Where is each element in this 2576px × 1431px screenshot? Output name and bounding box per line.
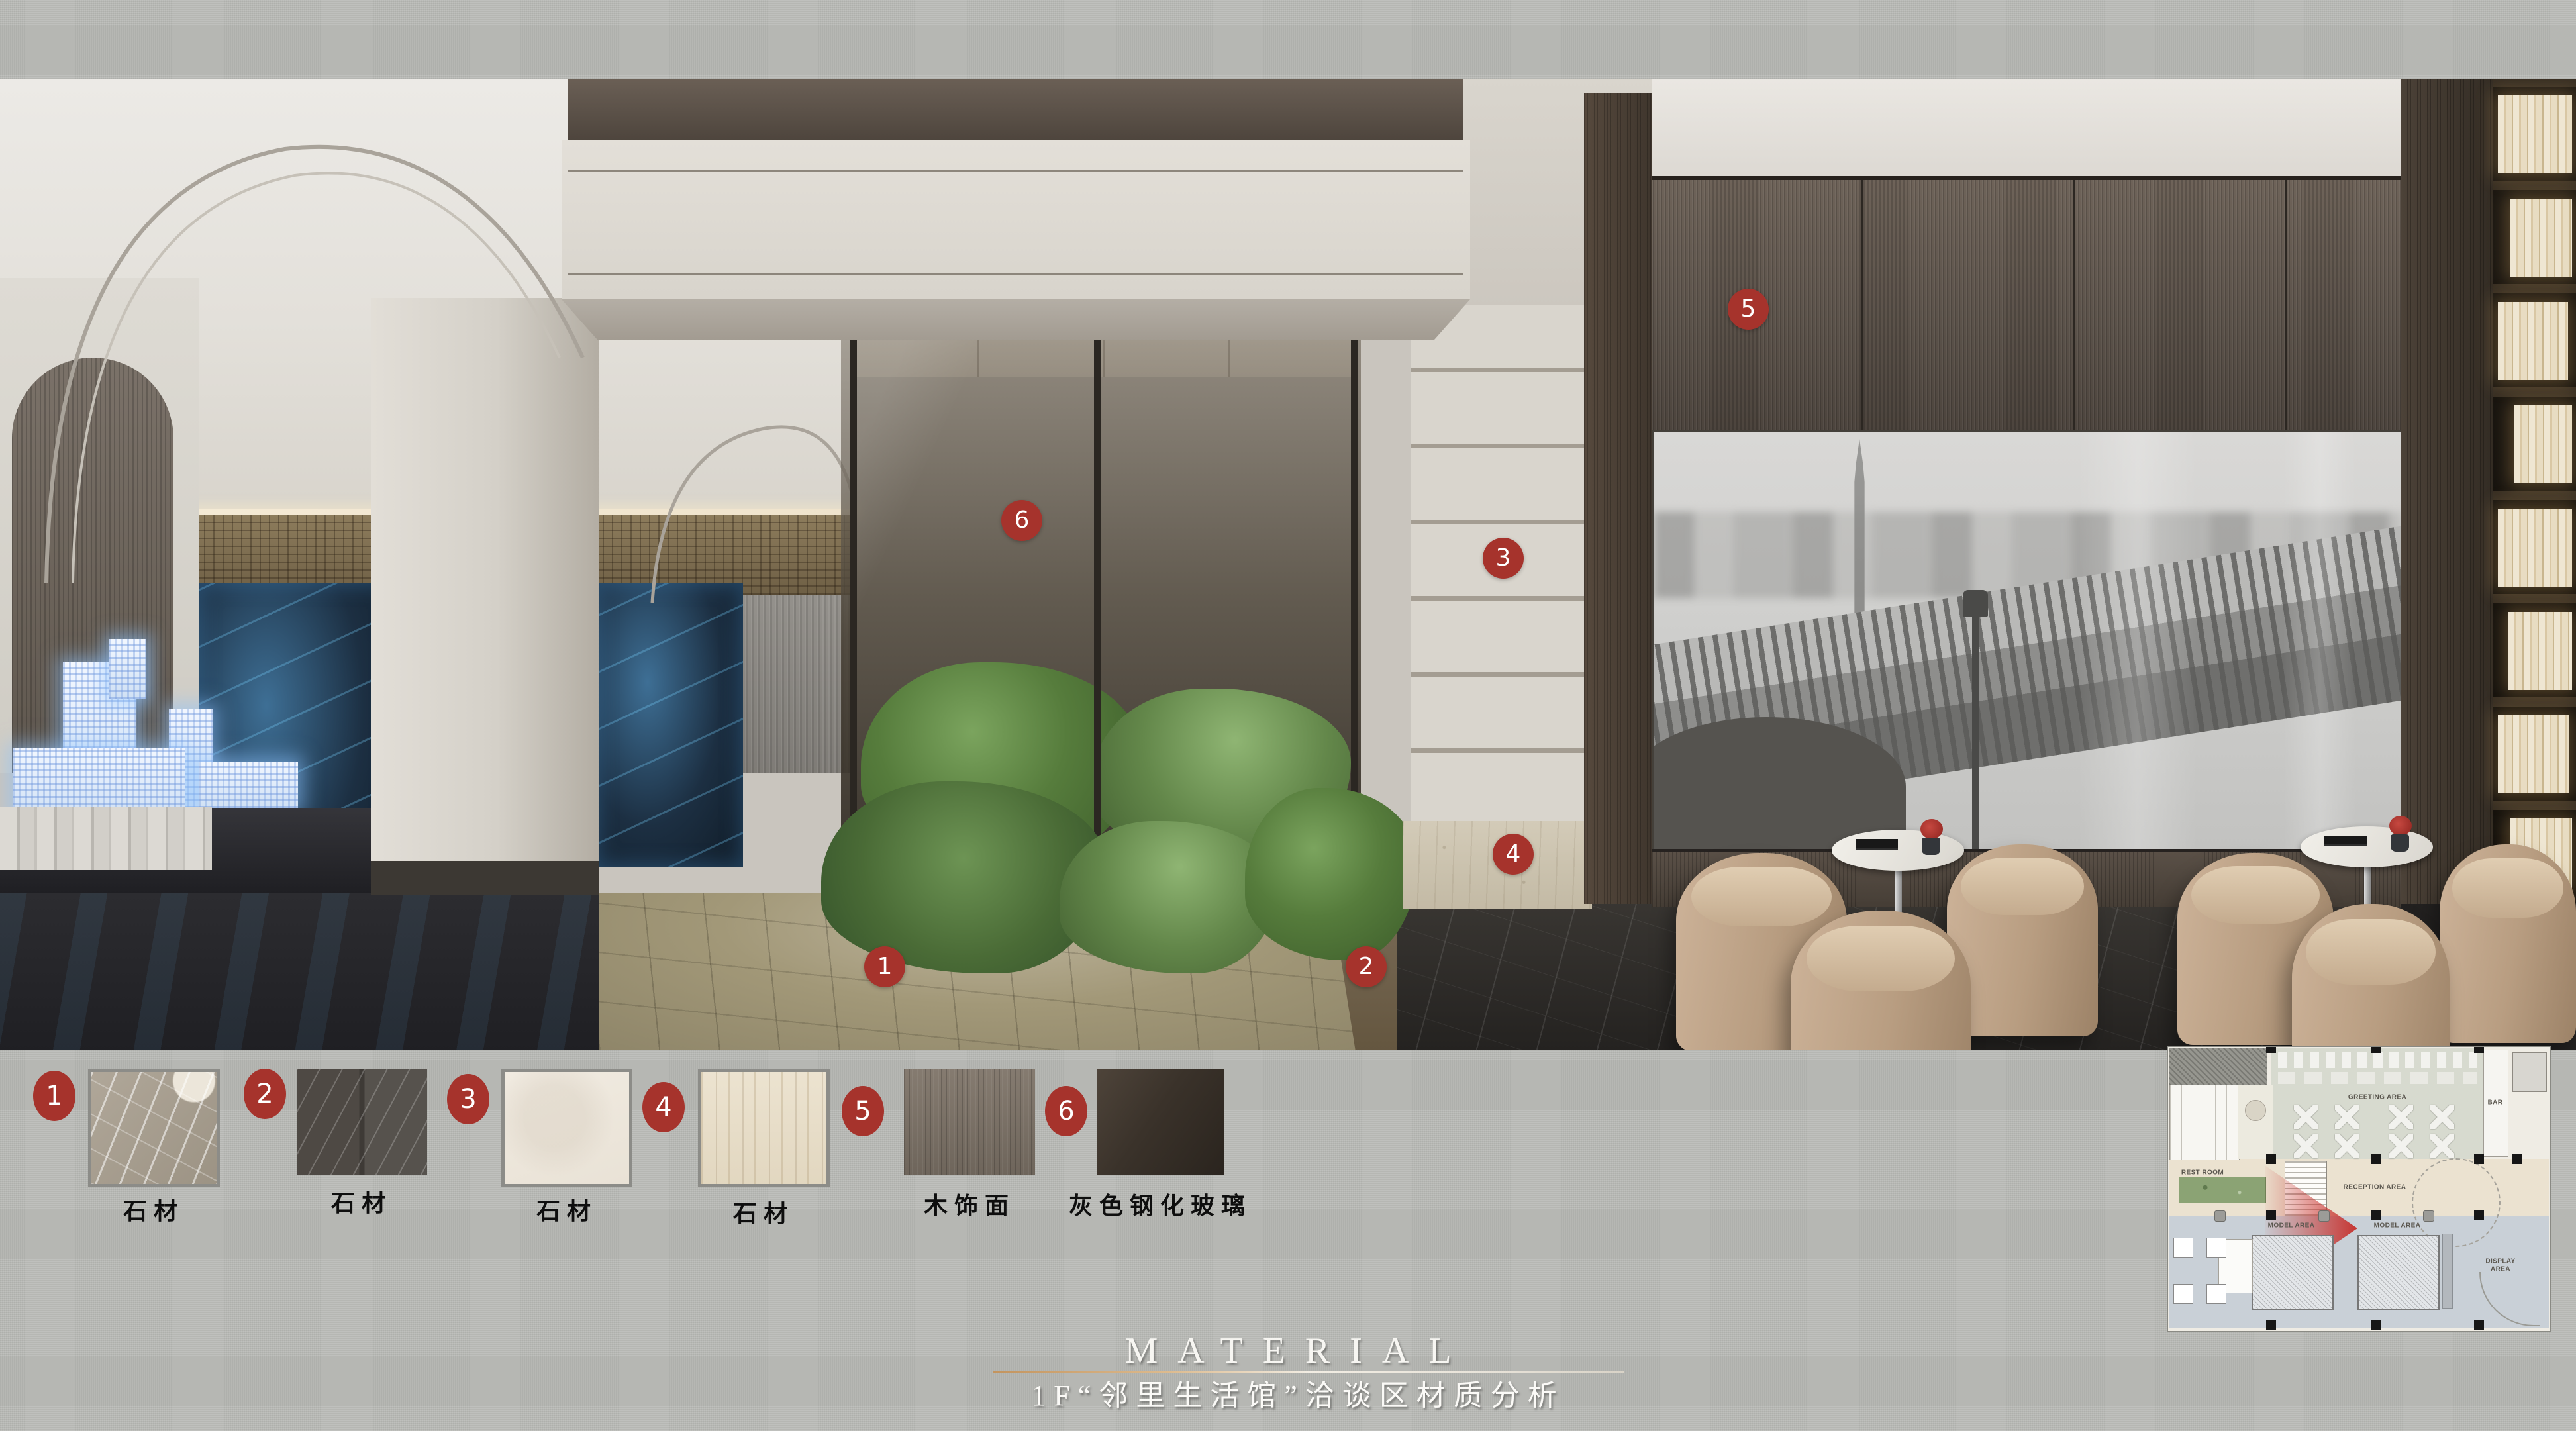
plan-column: [2371, 1210, 2381, 1220]
london-mural: [1652, 430, 2404, 853]
plan-column: [2512, 1154, 2522, 1164]
books-row: [2498, 302, 2568, 380]
model-white-buildings: [0, 807, 212, 870]
flower-pot: [2391, 834, 2409, 852]
plan-column: [2266, 1210, 2276, 1220]
dark-wood-pilaster: [2401, 79, 2493, 904]
plan-column-round: [2214, 1210, 2226, 1222]
swatch-label-5: 木饰面: [924, 1195, 1015, 1218]
swatch-stone-3: [501, 1069, 632, 1187]
plan-label-restroom: REST ROOM: [2179, 1169, 2226, 1177]
chair-cushion: [1691, 867, 1832, 926]
glass-reflection: [2078, 432, 2197, 851]
swatch-wood-veneer: [904, 1069, 1035, 1175]
plan-table-cluster: [2335, 1105, 2359, 1129]
swatch-gray-glass: [1097, 1069, 1224, 1175]
chair-cushion: [2306, 919, 2435, 985]
swatch-label-3: 石材: [536, 1200, 597, 1224]
dark-floor-left: [0, 893, 603, 1050]
plan-shower-room: [2169, 1048, 2267, 1085]
material-marker-4: 4: [1493, 834, 1534, 875]
parapet-soffit: [562, 299, 1470, 340]
interior-render: [0, 79, 2576, 1050]
street-lamp-pole: [1972, 605, 1979, 853]
swatch-label-2: 石材: [331, 1192, 392, 1216]
swatch-badge-3: 3: [447, 1074, 489, 1124]
books-row: [2508, 612, 2572, 690]
chair-cushion: [2191, 866, 2320, 924]
flower-pot: [1922, 838, 1940, 855]
plan-table-cluster: [2430, 1105, 2454, 1129]
plant-front-right: [1245, 788, 1417, 960]
plan-display-wall: [2442, 1234, 2453, 1309]
wood-panel-seam: [1861, 180, 1863, 432]
red-flowers: [2389, 816, 2412, 836]
plan-label-model-1: MODEL AREA: [2268, 1222, 2315, 1230]
swatch-badge-1: 1: [33, 1071, 75, 1121]
mezzanine-parapet: [562, 140, 1470, 299]
plan-column: [2371, 1320, 2381, 1330]
plan-restrooms: [2169, 1085, 2240, 1160]
books-row: [2498, 715, 2569, 793]
parapet-groove: [568, 170, 1463, 172]
plan-elevator: [2512, 1052, 2547, 1092]
plan-kids-room: [2238, 1085, 2273, 1159]
swatch-stone-4: [698, 1069, 830, 1187]
plan-sofa-row: [2278, 1072, 2477, 1084]
books-row: [2514, 405, 2572, 483]
red-flowers: [1920, 819, 1943, 839]
plan-led-screen: [2206, 1238, 2226, 1258]
lounge-chair: [2440, 844, 2576, 1043]
plan-label-bar: BAR: [2488, 1099, 2503, 1107]
plan-column-round: [2318, 1210, 2330, 1222]
lounge-chair: [2292, 904, 2450, 1050]
slide-canvas: 1 2 3 4 5 6 1 石材 2 石材 3 石材 4 石材 5 木饰面 6 …: [0, 0, 2576, 1431]
white-pier-left-base: [371, 861, 599, 895]
swatch-label-1: 石材: [123, 1200, 184, 1224]
material-marker-2: 2: [1346, 946, 1387, 987]
swatch-label-6: 灰色钢化玻璃: [1069, 1195, 1252, 1218]
plan-model-table-2: [2357, 1235, 2440, 1310]
plan-label-model-2: MODEL AREA: [2374, 1222, 2421, 1230]
plan-label-greeting: GREETING AREA: [2348, 1093, 2406, 1101]
floor-plan: GREETING AREA RECEPTION AREA MODEL AREA …: [2168, 1047, 2550, 1331]
table-top: [1832, 830, 1964, 871]
swatch-label-4: 石材: [733, 1203, 794, 1226]
plan-table-cluster: [2294, 1134, 2318, 1158]
plan-led-screen: [2173, 1284, 2193, 1304]
table-top: [2301, 826, 2433, 867]
table-book: [1856, 839, 1898, 848]
plan-column: [2474, 1210, 2484, 1220]
material-marker-1: 1: [864, 946, 905, 987]
plan-column-round: [2423, 1210, 2434, 1222]
model-block: [199, 762, 298, 808]
plan-booth-row: [2278, 1052, 2477, 1068]
glass-mullion-right: [1351, 278, 1358, 861]
page-subtitle: 1F“邻里生活馆”洽谈区材质分析: [891, 1379, 1705, 1414]
chair-cushion: [1807, 926, 1954, 991]
material-marker-5: 5: [1728, 289, 1769, 330]
material-marker-6: 6: [1001, 500, 1042, 541]
chair-cushion: [2452, 858, 2564, 918]
title-accent-line: [993, 1371, 1624, 1373]
plan-column: [2474, 1154, 2484, 1164]
material-marker-3: 3: [1483, 538, 1524, 579]
chair-cushion: [1961, 858, 2085, 915]
plan-led-screen: [2206, 1284, 2226, 1304]
table-book: [2324, 836, 2367, 844]
glass-reflection: [2283, 432, 2356, 851]
plan-planter: [2179, 1177, 2266, 1203]
swatch-badge-5: 5: [842, 1086, 884, 1136]
plan-column: [2371, 1047, 2381, 1053]
plan-model-table-1: [2252, 1235, 2334, 1310]
books-row: [2498, 95, 2572, 173]
lounge-chair: [1791, 911, 1971, 1050]
parapet-groove: [568, 273, 1463, 275]
glass-mullion-mid: [1094, 278, 1101, 861]
plan-table-cluster: [2430, 1134, 2454, 1158]
books-row: [2510, 199, 2572, 277]
plan-table-cluster: [2389, 1134, 2413, 1158]
page-title: MATERIAL: [957, 1332, 1639, 1369]
plan-table-cluster: [2389, 1105, 2413, 1129]
books-row: [2498, 509, 2572, 587]
swatch-badge-6: 6: [1045, 1086, 1087, 1136]
plan-table-cluster: [2294, 1105, 2318, 1129]
wood-strip-wall: [1584, 93, 1652, 904]
wood-panel-seam: [2285, 180, 2287, 432]
plan-led-screen: [2173, 1238, 2193, 1258]
plan-turntable-circle: [2412, 1158, 2501, 1247]
plan-column: [2474, 1047, 2484, 1053]
wood-panel-seam: [2073, 180, 2075, 432]
swatch-badge-2: 2: [244, 1069, 286, 1119]
mezzanine-opening: [568, 79, 1463, 140]
plan-label-reception: RECEPTION AREA: [2344, 1183, 2406, 1191]
plan-label-display: DISPLAY AREA: [2476, 1258, 2525, 1273]
street-lamp-head: [1963, 590, 1988, 617]
swatch-stone-1: [88, 1069, 220, 1187]
plan-column: [2266, 1154, 2276, 1164]
swatch-badge-4: 4: [642, 1082, 685, 1132]
plan-column: [2266, 1047, 2276, 1053]
plan-table-cluster: [2335, 1134, 2359, 1158]
plan-column: [2474, 1320, 2484, 1330]
plan-kids-table: [2245, 1100, 2266, 1121]
glass-mullion-left: [850, 278, 857, 861]
plan-column: [2371, 1154, 2381, 1164]
swatch-stone-2: [297, 1069, 427, 1175]
plan-column: [2266, 1320, 2276, 1330]
